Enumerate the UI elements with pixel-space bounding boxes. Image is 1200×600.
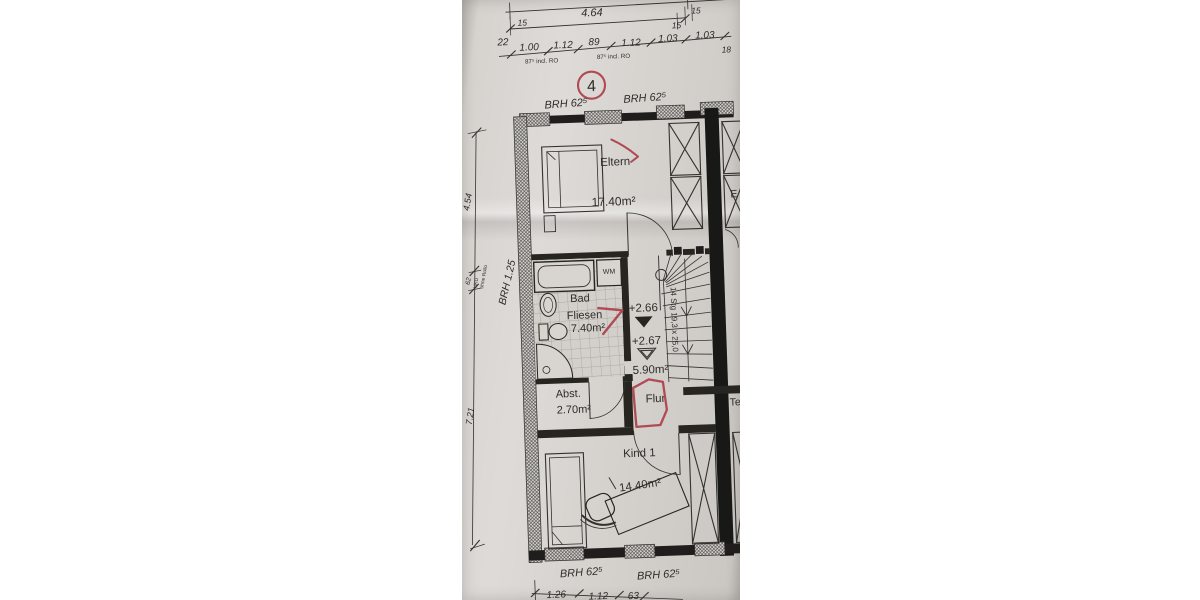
screenshot-root: { "photo": { "top_dims": { "overall": "4…: [0, 0, 1200, 600]
toilet-icon: [539, 323, 568, 340]
floorplan-photo: 4.64 15 15 15 22 1.00 1.12 89 1.12 1.03 …: [462, 0, 740, 600]
dim-89: 89: [588, 37, 600, 48]
bed-eltern-icon: [542, 145, 605, 232]
dim-112b: 1.12: [621, 37, 641, 49]
red-circled-number: 4: [578, 71, 606, 99]
dim-overall-label: 4.64: [581, 7, 603, 20]
room-label-kind: Kind 1: [623, 447, 656, 460]
dim-15-mid: 15: [672, 20, 682, 30]
wall-kind-north: [538, 427, 634, 438]
neighbor-label-partial-top: E: [730, 188, 737, 200]
note-incl-ro-right: 87⁵ incl. RO: [597, 53, 631, 61]
brh-top-right: BRH 62⁵: [623, 91, 667, 106]
room-kind: Kind 1 14.40m²: [545, 446, 690, 549]
level-markers: +2.66 +2.67 5.90m²: [629, 302, 669, 377]
room-label-bad-area: 7.40m²: [571, 322, 606, 335]
room-label-bad: Bad: [570, 292, 590, 305]
bed-kind-icon: [545, 453, 586, 549]
dim-chain-top: 22 1.00 1.12 89 1.12 1.03 1.03 87⁵ incl.…: [496, 29, 731, 66]
note-ohne-rollo: ohne Rollo: [479, 264, 489, 289]
level-upper-triangle-icon: [635, 316, 653, 328]
dim-15-left: 15: [517, 17, 527, 27]
brh-left-window: BRH 1.25: [496, 259, 518, 306]
stairs: 14 Stg 19,3 x 25,0: [655, 254, 713, 382]
dim-100: 1.00: [519, 42, 539, 54]
door-bad: [589, 381, 626, 418]
stairs-walk-line: [685, 259, 689, 381]
room-label-kind-area: 14.40m²: [618, 477, 662, 495]
brh-bottom-left: BRH 62⁵: [559, 565, 603, 580]
wall-kind-north-stub: [678, 424, 715, 433]
brh-top-left: BRH 62⁵: [544, 97, 588, 112]
flur-area-label: 5.90m²: [632, 364, 668, 377]
brh-bottom-right: BRH 62⁵: [637, 568, 681, 583]
dim-103b: 1.03: [695, 30, 715, 42]
room-label-bad-floor: Fliesen: [567, 309, 603, 322]
dim-112a: 1.12: [553, 40, 573, 52]
room-label-abst: Abst.: [556, 388, 581, 401]
room-label-eltern-area: 17.40m²: [591, 194, 635, 210]
neighbor-label-partial-mid: Te: [729, 396, 740, 408]
room-eltern: Eltern 17.40m²: [541, 139, 640, 232]
room-abst: Abst. 2.70m²: [556, 387, 592, 416]
room-label-eltern: Eltern: [600, 156, 630, 169]
floorplan-drawing: 4.64 15 15 15 22 1.00 1.12 89 1.12 1.03 …: [462, 0, 740, 600]
dim-left-upper: 4.54: [462, 192, 474, 211]
wm-label: WM: [603, 268, 616, 275]
sink-icon: [540, 293, 557, 317]
dim-103a: 1.03: [658, 33, 678, 45]
washing-machine-icon: WM: [597, 259, 622, 286]
stairs-label: 14 Stg 19,3 x 25,0: [669, 287, 680, 353]
dim-overall-464: 4.64 15 15 15: [506, 3, 702, 36]
room-bad: WM Bad Fliesen 7.40m²: [532, 257, 625, 379]
bathtub-icon: [534, 260, 595, 292]
dim-left-window: 62: [465, 277, 473, 286]
dim-bottom-63: 63: [628, 591, 640, 600]
dim-bottom-126: 1.26: [546, 589, 566, 600]
windows-bottom: [545, 542, 725, 561]
dim-left-lower: 7.21: [464, 407, 476, 426]
note-incl-ro-left: 87⁵ incl. RO: [525, 57, 559, 65]
door-eltern: [627, 212, 673, 258]
red-number-label: 4: [587, 78, 597, 95]
level-lower: +2.67: [632, 335, 662, 348]
dim-15-right: 15: [691, 5, 701, 15]
room-flur: Flur: [633, 379, 668, 427]
level-upper: +2.66: [629, 302, 659, 315]
dim-bottom-112: 1.12: [588, 591, 608, 600]
door-neighbor: [726, 229, 739, 247]
room-label-flur: Flur: [645, 393, 665, 406]
room-label-abst-area: 2.70m²: [556, 403, 591, 416]
wall-stair-south: [683, 385, 740, 395]
dim-right-partial: 18: [721, 44, 731, 54]
dim-22: 22: [496, 37, 509, 48]
